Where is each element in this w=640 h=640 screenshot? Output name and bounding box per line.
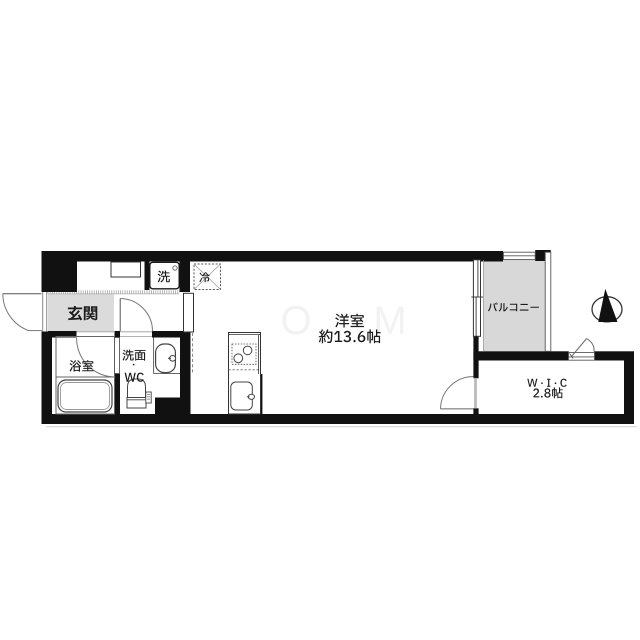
svg-text:O: O: [280, 299, 311, 343]
